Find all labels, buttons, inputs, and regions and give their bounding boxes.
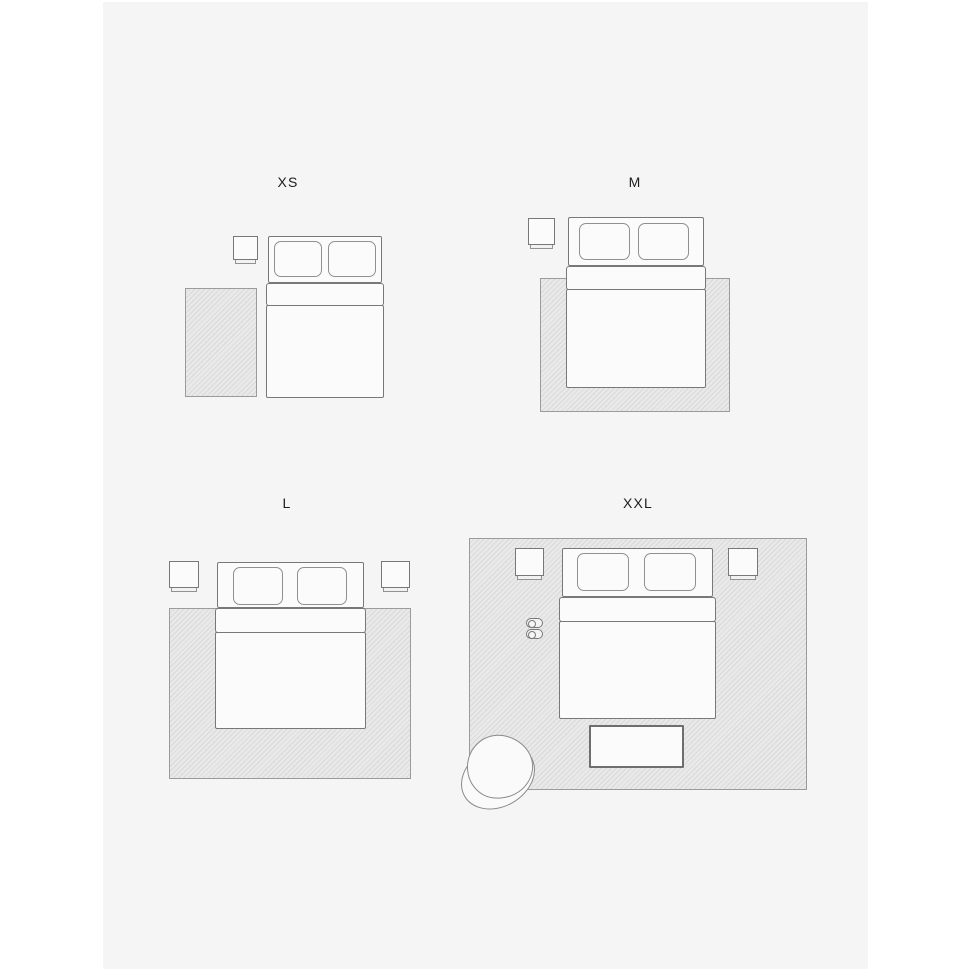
nightstand-icon (515, 548, 544, 576)
bed-mattress-icon (559, 621, 716, 719)
pillow-icon (638, 223, 689, 260)
illustration-background (103, 2, 868, 969)
nightstand-icon (233, 236, 258, 260)
size-label-xs: XS (277, 174, 298, 190)
bed-duvet-fold-icon (215, 608, 366, 633)
pillow-icon (328, 241, 376, 277)
size-label-l: L (283, 495, 292, 511)
bed-duvet-fold-icon (566, 266, 706, 290)
bed-duvet-fold-icon (266, 283, 384, 306)
bench-icon (589, 725, 684, 768)
nightstand-icon (169, 561, 199, 588)
nightstand-icon (728, 548, 758, 576)
rug-xs-icon (185, 288, 257, 397)
pillow-icon (233, 567, 283, 605)
pillow-icon (274, 241, 322, 277)
bed-mattress-icon (215, 632, 366, 729)
size-label-xxl: XXL (623, 495, 653, 511)
slipper-icon (526, 629, 543, 639)
nightstand-icon (381, 561, 410, 588)
nightstand-icon (528, 218, 555, 245)
slipper-icon (526, 618, 543, 628)
bed-mattress-icon (566, 289, 706, 388)
pillow-icon (579, 223, 630, 260)
bed-duvet-fold-icon (559, 597, 716, 622)
pillow-icon (644, 553, 696, 591)
pillow-icon (297, 567, 347, 605)
pillow-icon (577, 553, 629, 591)
bed-mattress-icon (266, 305, 384, 398)
size-label-m: M (629, 174, 642, 190)
rug-size-guide-illustration: XS M L XXL (0, 0, 970, 971)
